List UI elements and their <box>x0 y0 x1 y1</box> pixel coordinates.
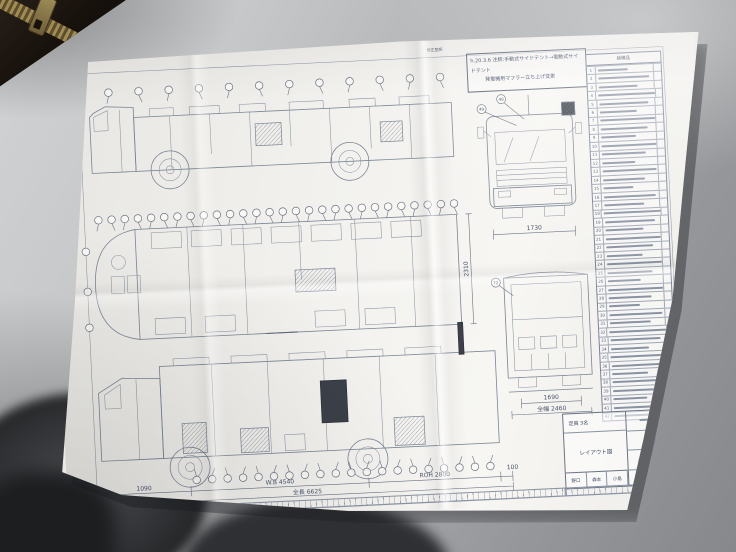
balloon <box>104 89 112 97</box>
balloon <box>450 200 458 208</box>
revision-label: 修正箇所 <box>427 47 443 54</box>
balloon <box>305 206 313 214</box>
desk-surface: 2310 <box>0 0 736 552</box>
balloon <box>347 469 355 477</box>
balloon <box>406 74 414 82</box>
balloon <box>331 205 339 213</box>
dim-overall-length: 全長 6625 <box>293 487 323 496</box>
balloon <box>266 208 274 216</box>
drawing-title: レイアウト図 <box>564 431 628 473</box>
balloon <box>318 206 326 214</box>
balloon <box>239 474 247 482</box>
balloon <box>437 200 445 208</box>
balloon <box>134 214 142 222</box>
balloon <box>301 471 309 479</box>
balloon <box>208 475 216 483</box>
front-view: 49 48 1730 <box>476 91 587 240</box>
dim-front-width: 1730 <box>526 224 542 232</box>
balloon <box>486 462 494 470</box>
balloon <box>193 476 201 484</box>
balloon <box>456 464 464 472</box>
balloon <box>346 77 354 85</box>
balloon <box>315 79 323 87</box>
balloon <box>94 216 102 224</box>
title-block-field <box>626 408 706 431</box>
balloon <box>255 82 263 90</box>
balloon <box>332 469 340 477</box>
balloon <box>363 468 371 476</box>
balloon <box>436 73 444 81</box>
balloon <box>316 470 324 478</box>
balloon <box>358 204 366 212</box>
dim-front-overhang: 1090 <box>136 485 152 493</box>
balloon <box>371 203 379 211</box>
balloon <box>409 466 417 474</box>
blueprint-paper: 2310 <box>57 26 705 512</box>
balloon <box>255 473 263 481</box>
balloon <box>378 467 386 475</box>
dim-overall-width: 全幅 2460 <box>537 404 567 413</box>
balloon-49: 49 <box>479 107 485 112</box>
balloon <box>135 87 143 95</box>
side-view: 1090 W.B 4540 ROH 2800 100 全長 6625 <box>90 320 519 510</box>
balloon <box>121 215 129 223</box>
balloon <box>285 80 293 88</box>
balloon <box>239 209 247 217</box>
balloon <box>397 202 405 210</box>
balloon-48: 48 <box>498 97 504 102</box>
dim-rear-track: 1690 <box>543 394 559 402</box>
balloon <box>252 209 260 217</box>
balloon <box>173 213 181 221</box>
balloon <box>384 203 392 211</box>
top-side-view <box>88 73 454 193</box>
balloon <box>345 204 353 212</box>
balloon <box>108 216 116 224</box>
balloon <box>394 466 402 474</box>
balloon <box>200 211 208 219</box>
balloon <box>376 76 384 84</box>
dim-body-width: 2310 <box>463 261 471 277</box>
balloon-72: 72 <box>493 280 499 285</box>
balloon <box>411 201 419 209</box>
balloon <box>195 84 203 92</box>
balloon <box>187 212 195 220</box>
zipper-teeth-icon <box>0 0 110 61</box>
balloon <box>147 214 155 222</box>
balloon <box>226 210 234 218</box>
balloon <box>225 83 233 91</box>
revision-note-box: h.20.3.6 注釈:手動式サイドテント→電動式サイドテント 発電機用マフラー… <box>466 48 588 93</box>
balloon <box>165 86 173 94</box>
rear-view: 72 1690 全幅 2460 <box>491 270 594 419</box>
dim-wheelbase: W.B 4540 <box>266 478 295 486</box>
title-block-field <box>627 428 707 451</box>
title-block-left: 定員 3名 レイアウト図 野口 森本 小島 <box>563 412 629 489</box>
dim-rear-overhang: ROH 2800 <box>419 471 450 479</box>
balloon <box>213 211 221 219</box>
balloon <box>224 474 232 482</box>
balloon <box>160 213 168 221</box>
balloon <box>279 208 287 216</box>
plan-view: 2310 <box>80 199 476 342</box>
balloon <box>424 201 432 209</box>
balloon <box>292 207 300 215</box>
dim-rear-extra: 100 <box>507 464 519 472</box>
balloon <box>471 463 479 471</box>
drawing-sheet: 2310 <box>46 11 716 527</box>
